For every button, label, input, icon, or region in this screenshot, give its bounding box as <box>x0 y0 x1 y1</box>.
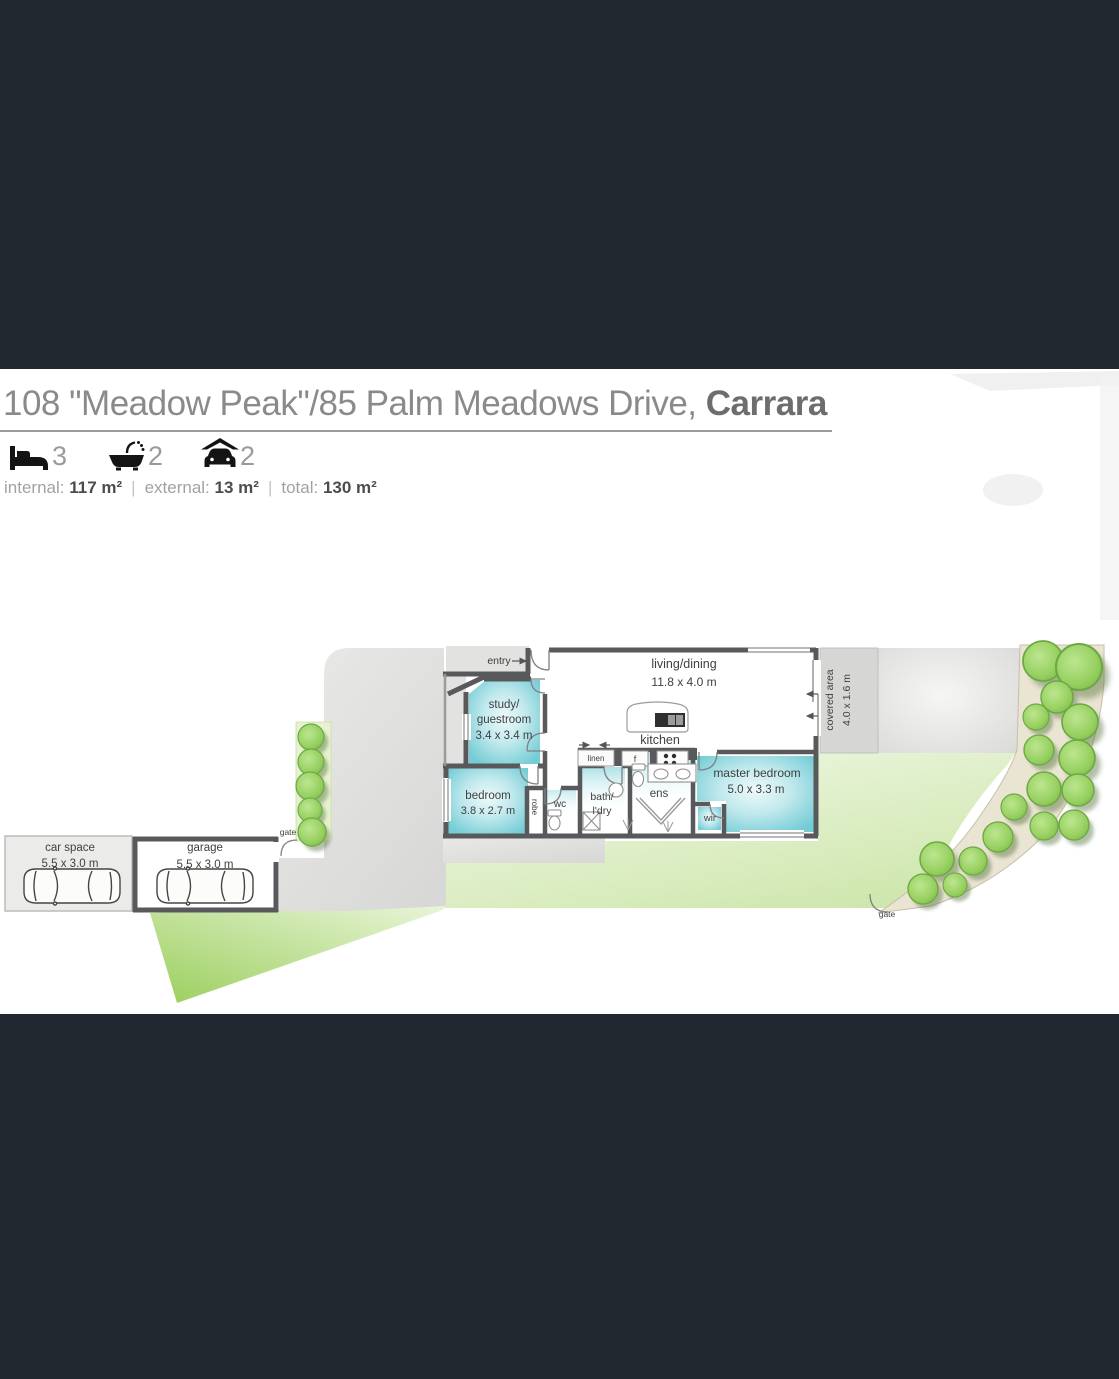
bench-stub1 <box>614 748 622 766</box>
artifact-blob <box>983 474 1043 506</box>
label-wir: wir <box>703 813 716 824</box>
label-master-dims: 5.0 x 3.3 m <box>728 784 785 796</box>
label-robe: robe <box>530 799 539 816</box>
label-garage-dims: 5.5 x 3.0 m <box>177 859 234 871</box>
label-study2: guestroom <box>477 714 531 726</box>
label-master: master bedroom <box>713 766 800 780</box>
patio-below-house <box>443 836 605 863</box>
label-study-dims: 3.4 x 3.4 m <box>476 730 533 742</box>
label-gate-left: gate <box>280 827 297 837</box>
label-study1: study/ <box>489 699 520 711</box>
artifact-streak <box>950 371 1119 391</box>
label-living: living/dining <box>651 657 716 671</box>
label-bath2: l'dry <box>593 805 613 817</box>
label-bedroom-dims: 3.8 x 2.7 m <box>461 805 515 817</box>
label-kitchen: kitchen <box>640 733 680 747</box>
label-covered: covered area <box>824 669 836 730</box>
tree-icon <box>1059 810 1094 846</box>
label-car-space-dims: 5.5 x 3.0 m <box>42 858 99 870</box>
tree-icon <box>1062 774 1099 812</box>
label-wc: wc <box>553 799 566 810</box>
kitchen-island <box>627 702 688 732</box>
label-entry: entry <box>487 655 511 667</box>
lawn-front-wedge2 <box>150 905 445 1000</box>
label-linen: linen <box>588 754 605 763</box>
label-living-dims: 11.8 x 4.0 m <box>651 675 716 689</box>
floorplan: entry living/dining 11.8 x 4.0 m kitchen… <box>0 0 1119 1379</box>
label-bedroom: bedroom <box>465 790 510 802</box>
label-gate-right: gate <box>879 909 896 919</box>
artifact-edge <box>1100 375 1119 620</box>
label-bath1: bath/ <box>590 791 613 803</box>
label-covered-dims: 4.0 x 1.6 m <box>841 674 853 726</box>
patio-right <box>878 648 1020 753</box>
car-top-view <box>24 867 120 905</box>
label-car-space: car space <box>45 842 95 854</box>
car-top-view <box>157 867 253 905</box>
bench-stub2 <box>650 748 657 766</box>
label-garage: garage <box>187 842 223 854</box>
wc-fixtures <box>548 810 561 830</box>
bench-corner <box>688 748 697 760</box>
label-ens: ens <box>650 788 669 800</box>
